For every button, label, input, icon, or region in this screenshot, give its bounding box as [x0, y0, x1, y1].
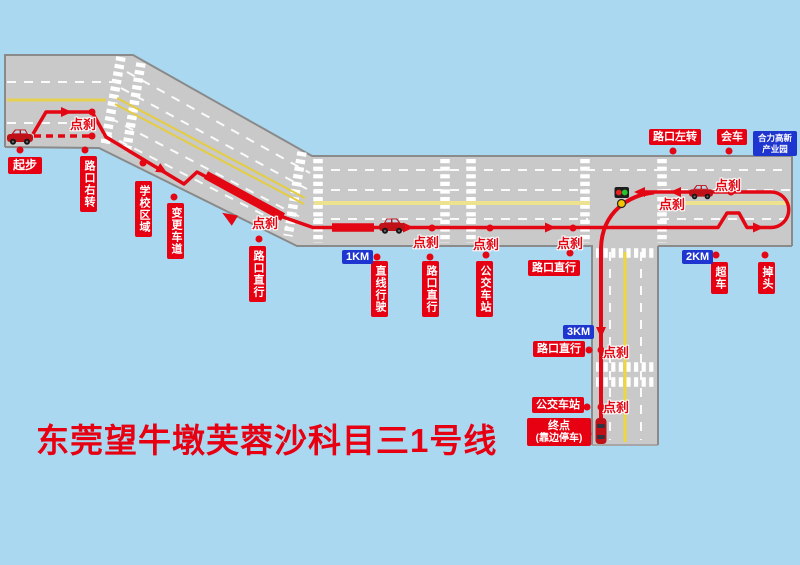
km-marker-3: 3KM — [563, 325, 594, 339]
km-marker-2: 2KM — [682, 250, 713, 264]
label-school-zone: 学校区域 — [135, 181, 152, 237]
label-u-turn: 掉头 — [758, 262, 775, 294]
route-title: 东莞望牛墩芙蓉沙科目三1号线 — [36, 414, 497, 462]
label-turn-right: 路口右转 — [80, 156, 97, 212]
label-bus-station-1: 公交车站 — [476, 261, 493, 317]
tap-brake-text: 点刹 — [473, 234, 499, 253]
tap-brake-text: 点刹 — [557, 233, 583, 252]
label-start: 起步 — [8, 157, 42, 174]
label-bus-station-2: 公交车站 — [532, 397, 584, 413]
label-overtake: 超车 — [711, 262, 728, 294]
tap-brake-text: 点刹 — [413, 232, 439, 251]
route-map: 起步 路口右转 学校区域 变更车道 路口直行 直线行驶 路口直行 公交车站 路口… — [0, 0, 800, 565]
label-cross-straight-4: 路口直行 — [533, 341, 585, 357]
endpoint-line2: (靠边停车) — [530, 433, 588, 445]
label-straight-driving: 直线行驶 — [371, 261, 388, 317]
tap-brake-text: 点刹 — [603, 397, 629, 416]
road-main-segment — [296, 155, 792, 246]
label-cross-straight-2: 路口直行 — [422, 261, 439, 317]
label-cross-straight-1: 路口直行 — [249, 246, 266, 302]
industrial-park-line1: 合力高新 — [755, 133, 795, 144]
car-icon — [596, 418, 607, 444]
label-change-lane: 变更车道 — [167, 203, 184, 259]
label-endpoint: 终点 (靠边停车) — [527, 418, 591, 446]
tap-brake-text: 点刹 — [70, 114, 96, 133]
label-meet-vehicle: 会车 — [717, 129, 747, 145]
label-industrial-park: 合力高新 产业园 — [753, 131, 797, 156]
tap-brake-text: 点刹 — [715, 175, 741, 194]
map-canvas — [0, 0, 800, 565]
tap-brake-text: 点刹 — [252, 213, 278, 232]
endpoint-line1: 终点 — [530, 420, 588, 433]
label-cross-straight-3: 路口直行 — [528, 260, 580, 276]
industrial-park-line2: 产业园 — [755, 144, 795, 155]
tap-brake-text: 点刹 — [659, 194, 685, 213]
tap-brake-text: 点刹 — [603, 342, 629, 361]
km-marker-1: 1KM — [342, 250, 373, 264]
label-left-turn: 路口左转 — [649, 129, 701, 145]
roads — [5, 54, 792, 446]
